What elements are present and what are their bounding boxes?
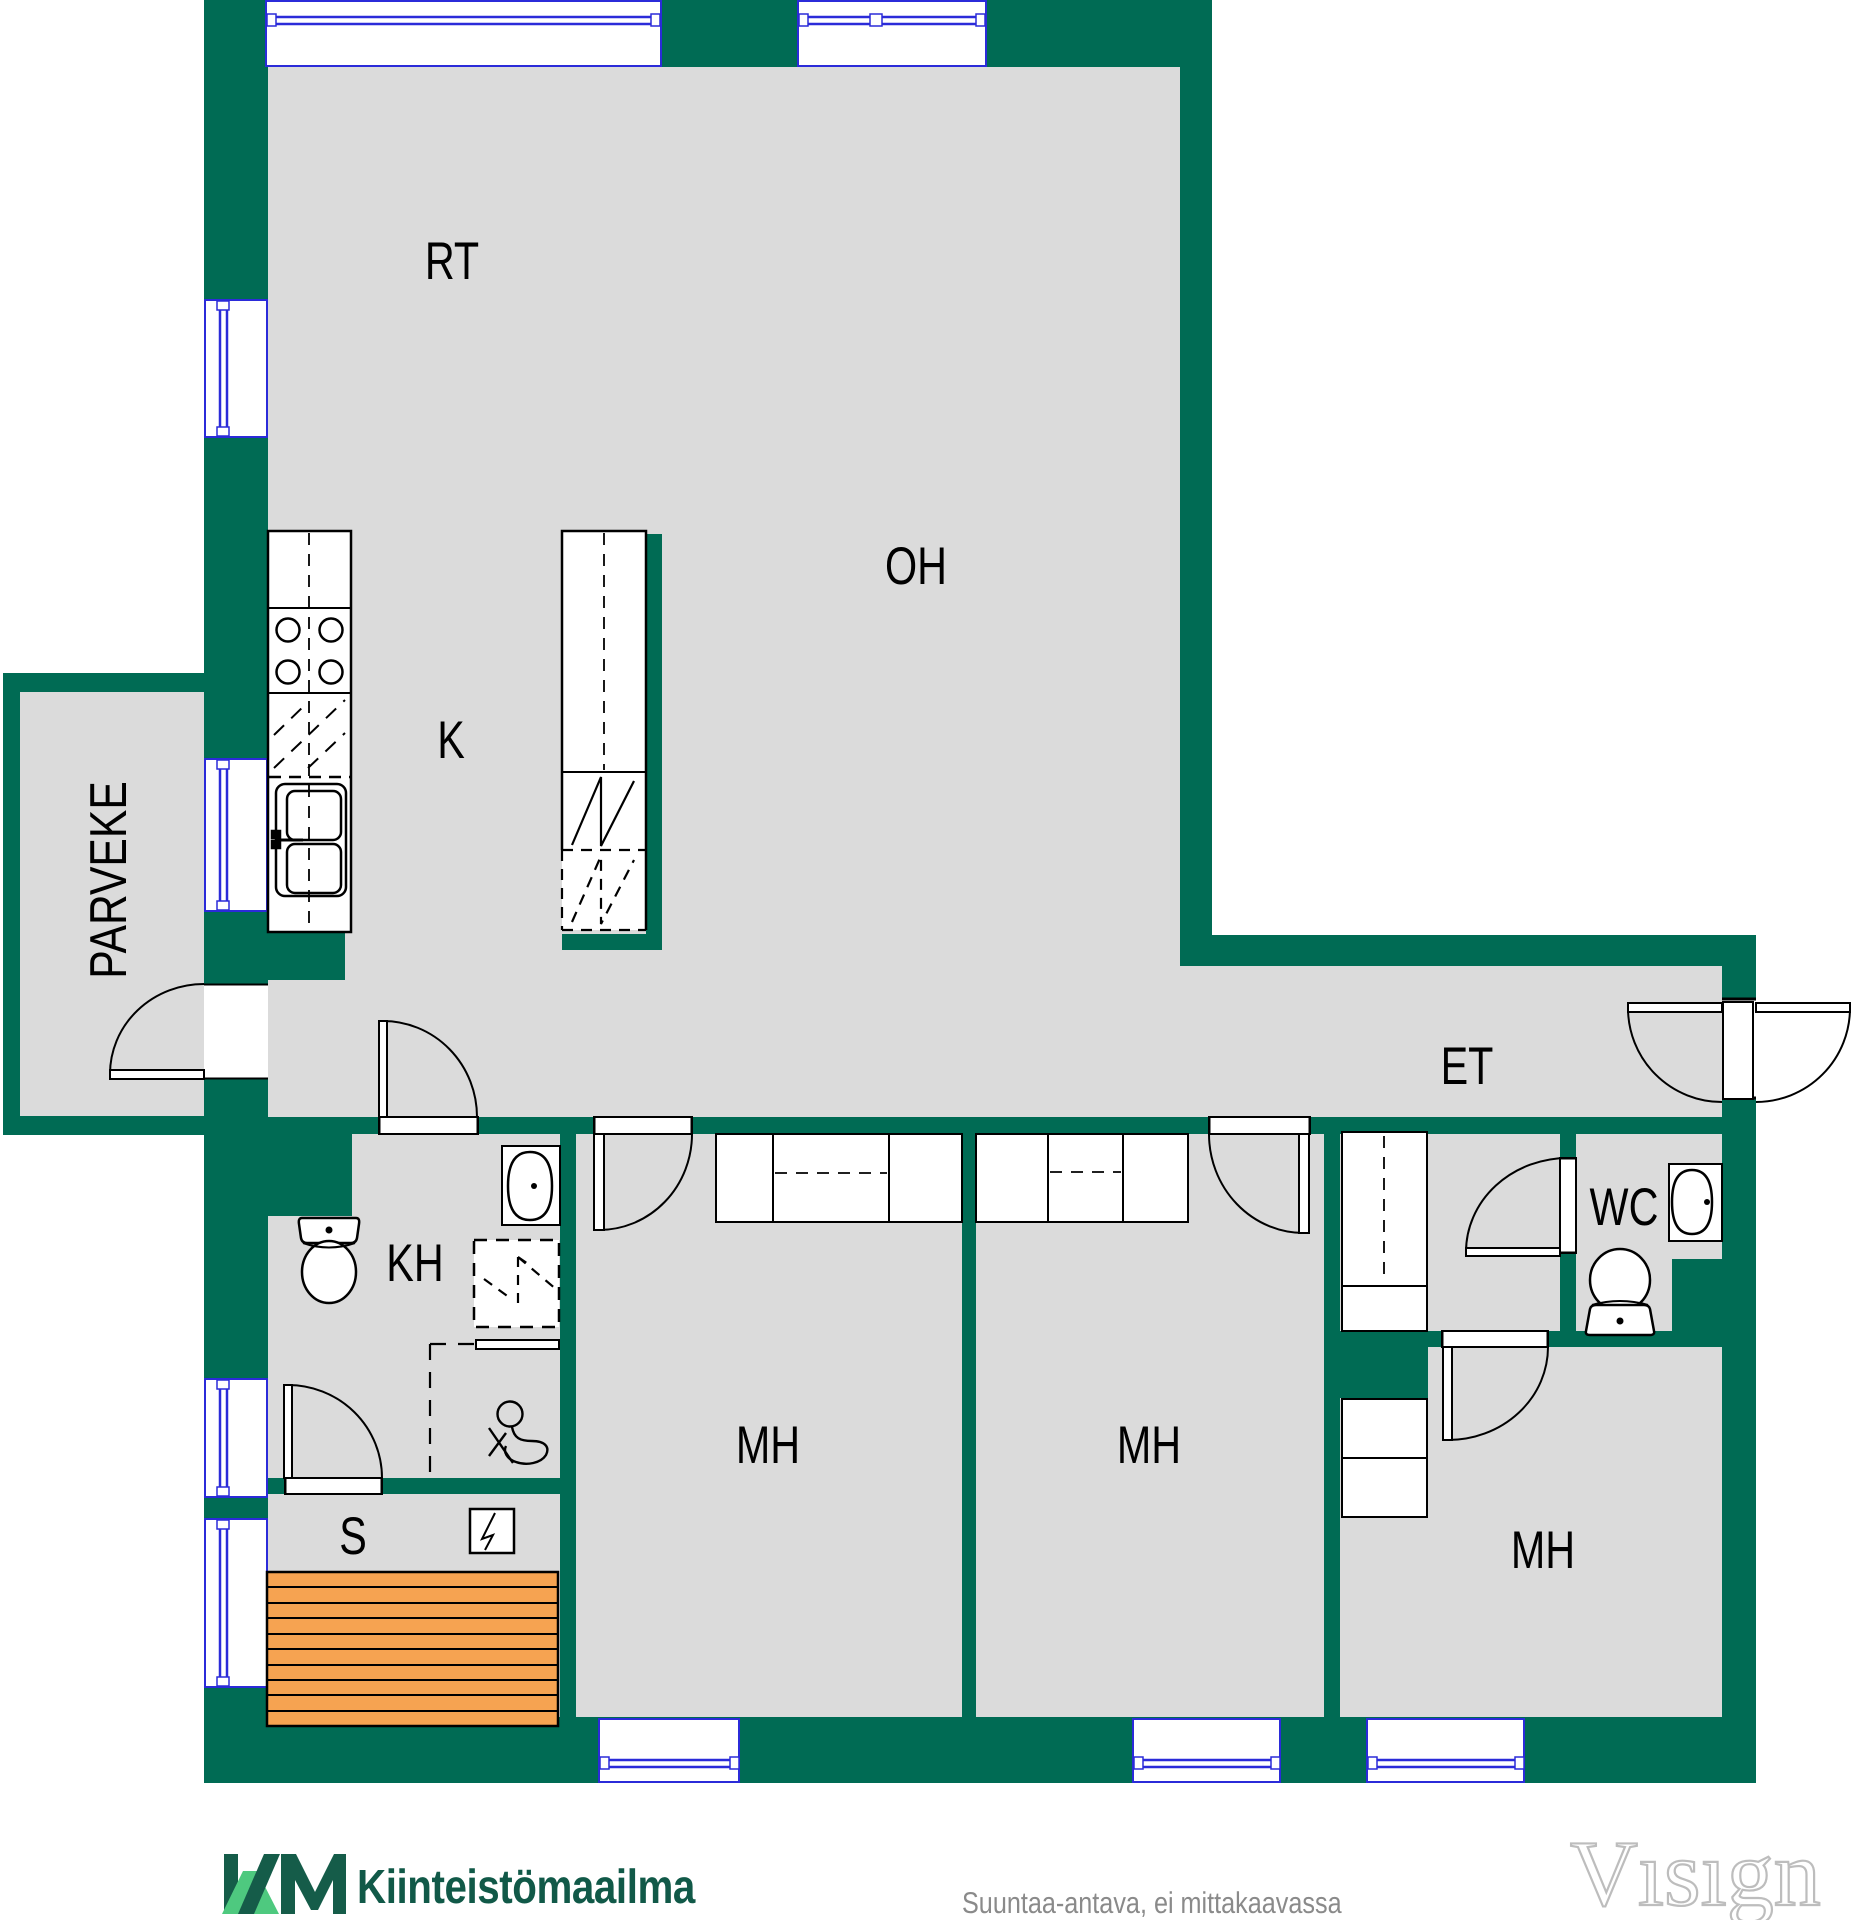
svg-text:MH: MH [736, 1416, 800, 1475]
svg-text:S: S [339, 1507, 367, 1566]
svg-text:MH: MH [1117, 1416, 1181, 1475]
svg-text:WC: WC [1590, 1178, 1659, 1237]
svg-text:Vısıgn: Vısıgn [1570, 1822, 1821, 1920]
svg-text:PARVEKE: PARVEKE [80, 781, 138, 979]
svg-text:MH: MH [1511, 1521, 1575, 1580]
svg-text:K: K [437, 711, 465, 770]
svg-text:RT: RT [425, 232, 479, 291]
svg-text:ET: ET [1441, 1037, 1494, 1096]
svg-text:Suuntaa-antava, ei mittakaavas: Suuntaa-antava, ei mittakaavassa [962, 1887, 1342, 1920]
svg-text:OH: OH [885, 537, 947, 596]
svg-text:KH: KH [386, 1234, 443, 1293]
svg-text:Kiinteistömaailma: Kiinteistömaailma [357, 1861, 696, 1914]
